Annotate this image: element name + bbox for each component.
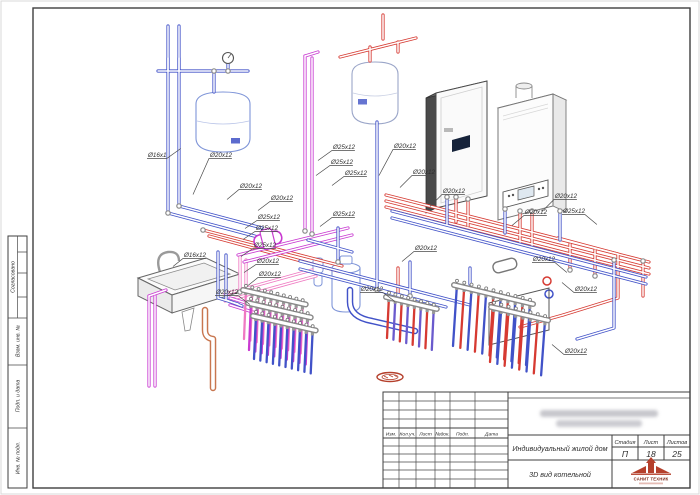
callout-text: Ø20x12 [442, 188, 466, 195]
rev-header-koluch: Кол.уч. [400, 432, 416, 438]
expansion-tank-left [196, 92, 250, 152]
pressure-gauge [223, 53, 234, 64]
drawing-title: 3D вид котельной [529, 470, 591, 479]
sheet-label: Лист [643, 440, 659, 446]
callout-text: Ø20x12 [239, 183, 263, 190]
callout-text: Ø20x12 [524, 209, 548, 216]
sheets-label: Листов [666, 440, 687, 446]
callout-text: Ø25x12 [344, 170, 368, 177]
callout-text: Ø20x12 [393, 143, 417, 150]
company-name: САНИТ ТЕХНИК [634, 477, 669, 482]
sheets-total: 25 [671, 449, 682, 459]
callout-text: Ø20x12 [258, 271, 282, 278]
callout-text: Ø25x12 [257, 214, 281, 221]
callout-text: Ø25x12 [255, 225, 279, 232]
stamp-approved-label: Согласовано [11, 261, 17, 293]
callout-text: Ø20x12 [554, 193, 578, 200]
boiler-brand-plate [444, 128, 453, 132]
red-valve-ring [543, 277, 551, 285]
company-tagline-line [639, 483, 663, 485]
callout-text: Ø25x12 [562, 208, 586, 215]
drawing-sheet: Ø16x1Ø20x12Ø25x12Ø25x12Ø20x12Ø20x12Ø25x1… [0, 0, 700, 495]
callout-text: Ø20x12 [564, 348, 588, 355]
boiler-room-3d-drawing: Ø16x1Ø20x12Ø25x12Ø25x12Ø20x12Ø20x12Ø25x1… [0, 0, 700, 495]
callout-text: Ø20x12 [209, 152, 233, 159]
callout-text: Ø25x12 [253, 242, 277, 249]
stamp-replace-inv-label: Взам. инв. № [16, 325, 22, 357]
callout-text: Ø20x12 [270, 195, 294, 202]
callout-text: Ø20x12 [574, 286, 598, 293]
callout-text: Ø20x12 [256, 258, 280, 265]
callout-text: Ø20x12 [360, 286, 384, 293]
callout-text: Ø20x12 [414, 245, 438, 252]
stamp-inv-orig-label: Инв. № подл. [16, 442, 22, 474]
rev-header-podp: Подп. [456, 432, 469, 438]
expansion-tank-center [352, 62, 398, 124]
rev-header-data: Дата [484, 432, 498, 438]
callout-text: Ø20x12 [532, 256, 556, 263]
floor-drain [377, 373, 403, 382]
callout-text: Ø25x12 [330, 159, 354, 166]
rev-header-izm: Изм. [386, 432, 396, 438]
rev-header-ndok: №док. [435, 432, 449, 438]
object-name: Индивидуальный жилой дом [512, 444, 607, 453]
rev-header-list: Лист [418, 432, 432, 438]
callout-text: Ø25x12 [332, 144, 356, 151]
callout-text: Ø16x1 [147, 152, 167, 159]
stage-label: Стадия [615, 440, 636, 446]
callout-text: Ø20x12 [215, 289, 239, 296]
stamp-sign-date-label: Подп. и дата [16, 380, 22, 413]
stage-value: П [622, 449, 629, 459]
callout-text: Ø25x12 [332, 211, 356, 218]
callout-text: Ø16x12 [183, 252, 207, 259]
callout-text: Ø20x12 [412, 169, 436, 176]
